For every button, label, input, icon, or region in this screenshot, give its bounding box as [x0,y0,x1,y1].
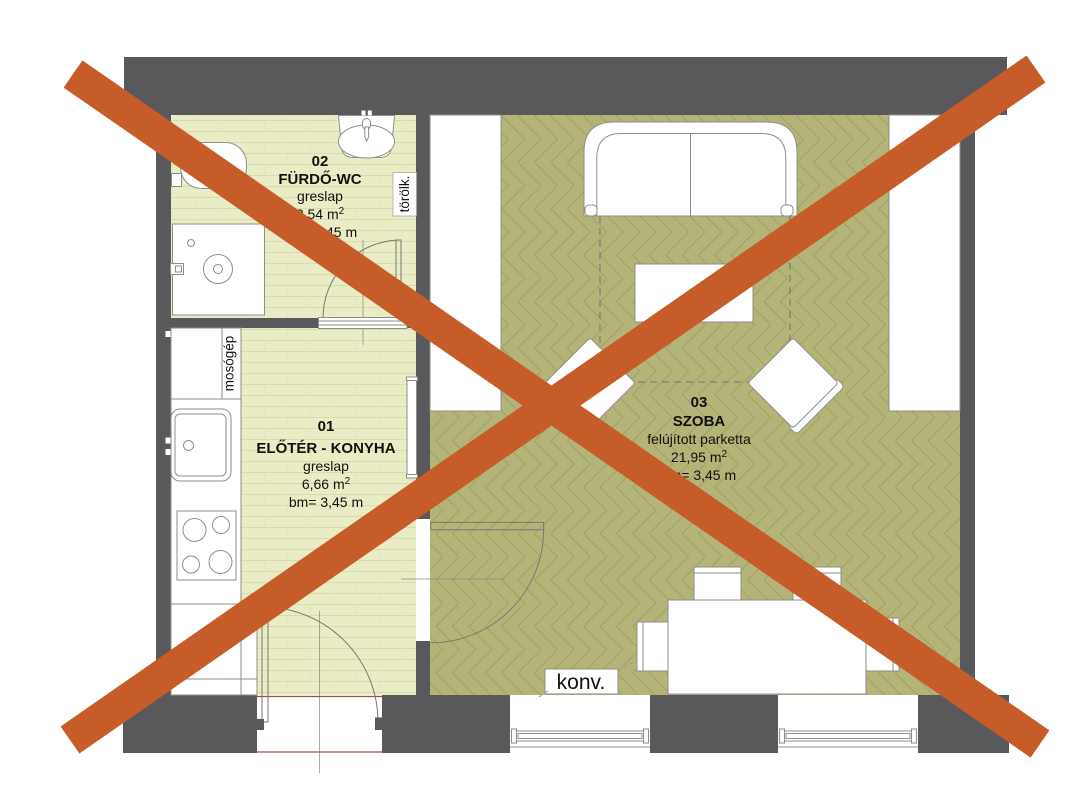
svg-text:01: 01 [318,418,335,435]
svg-text:mosógép: mosógép [222,336,237,392]
svg-text:03: 03 [691,394,708,411]
svg-text:törölk.: törölk. [397,176,412,213]
svg-text:felújított parketta: felújított parketta [647,431,751,447]
svg-text:SZOBA: SZOBA [673,413,726,430]
svg-text:greslap: greslap [297,188,343,204]
svg-text:greslap: greslap [303,458,349,474]
svg-text:21,95 m2: 21,95 m2 [671,449,728,465]
svg-text:FÜRDŐ-WC: FÜRDŐ-WC [278,170,361,188]
svg-text:02: 02 [312,153,329,170]
svg-text:bm= 3,45 m: bm= 3,45 m [289,494,363,510]
svg-text:ELŐTÉR - KONYHA: ELŐTÉR - KONYHA [256,439,395,457]
svg-text:konv.: konv. [557,671,606,694]
svg-text:6,66 m2: 6,66 m2 [302,476,351,492]
